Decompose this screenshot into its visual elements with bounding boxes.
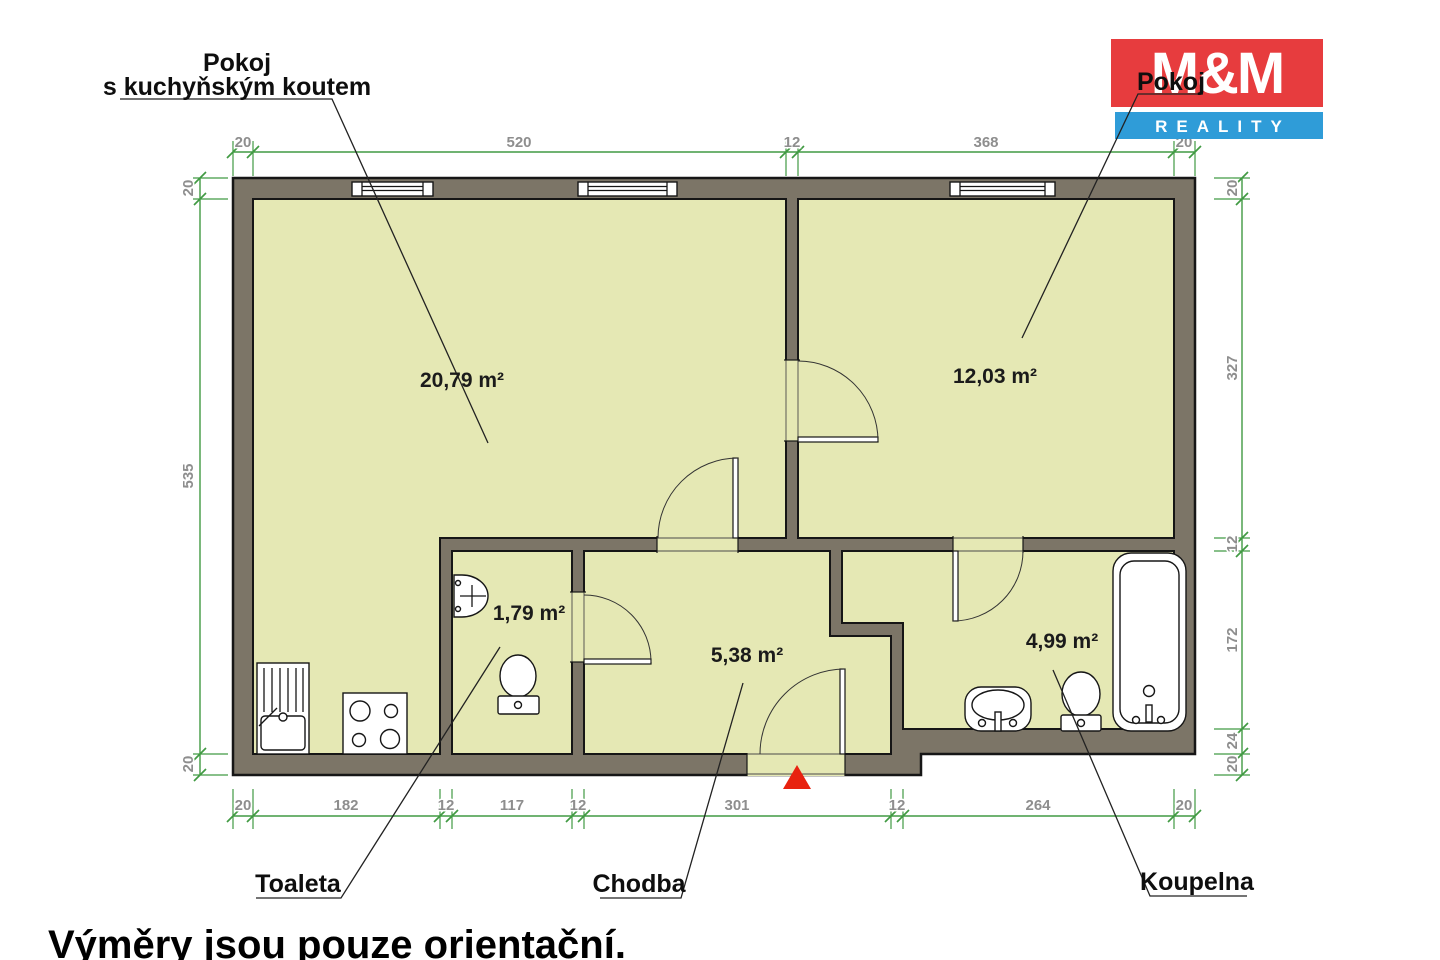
bathtub-icon <box>1113 553 1186 731</box>
room2-label: Pokoj <box>1137 68 1205 96</box>
stove-icon <box>343 693 407 754</box>
dimension-labels-bottom: 20 182 12 117 12 301 12 264 20 <box>235 797 1193 814</box>
window-icon <box>578 182 677 196</box>
dim-label: 182 <box>333 797 358 814</box>
dim-label: 535 <box>180 463 197 488</box>
dim-label: 301 <box>724 797 749 814</box>
dim-label: 20 <box>180 180 197 197</box>
dimension-labels-left: 20 535 20 <box>180 180 197 773</box>
dim-label: 20 <box>1176 797 1193 814</box>
dim-label: 264 <box>1025 797 1051 814</box>
window-icon <box>950 182 1055 196</box>
dim-label: 12 <box>889 797 906 814</box>
window-icon <box>352 182 433 196</box>
toilet-icon <box>498 655 539 714</box>
dim-label: 20 <box>235 134 252 151</box>
bathroom-sink-icon <box>965 687 1031 731</box>
kitchen-sink-icon <box>257 663 309 754</box>
room-kitchen-area: 20,79 m² <box>420 369 504 392</box>
floor-plan-page: 20 520 12 368 20 20 182 12 117 12 301 12… <box>0 0 1440 960</box>
room-kitchen-label-line2: s kuchyňským koutem <box>103 73 371 101</box>
logo-reality-text: REALITY <box>1155 117 1291 136</box>
hallway-label: Chodba <box>592 870 686 898</box>
bathroom-area: 4,99 m² <box>1026 630 1098 653</box>
dim-label: 172 <box>1224 627 1241 652</box>
floor-plan: 20 520 12 368 20 20 182 12 117 12 301 12… <box>0 0 1440 960</box>
dim-label: 12 <box>1224 536 1241 553</box>
toilet-area: 1,79 m² <box>493 602 565 625</box>
dimension-labels-top: 20 520 12 368 20 <box>235 134 1193 151</box>
footer-note: Výměry jsou pouze orientační. <box>48 923 626 960</box>
dim-label: 117 <box>500 797 524 814</box>
dim-label: 12 <box>438 797 455 814</box>
dim-label: 20 <box>1224 180 1241 197</box>
dimension-labels-right: 20 327 12 172 24 20 <box>1224 180 1241 773</box>
dim-label: 327 <box>1224 355 1241 380</box>
dim-label: 24 <box>1224 732 1241 749</box>
hallway-area: 5,38 m² <box>711 644 783 667</box>
room2-area: 12,03 m² <box>953 365 1037 388</box>
dim-label: 520 <box>506 134 531 151</box>
dim-label: 20 <box>180 756 197 773</box>
dim-label: 12 <box>784 134 801 151</box>
dim-label: 368 <box>973 134 998 151</box>
dim-label: 12 <box>570 797 587 814</box>
dim-label: 20 <box>235 797 252 814</box>
bathroom-label: Koupelna <box>1140 868 1255 896</box>
dim-label: 20 <box>1224 756 1241 773</box>
toilet-label: Toaleta <box>255 870 342 898</box>
